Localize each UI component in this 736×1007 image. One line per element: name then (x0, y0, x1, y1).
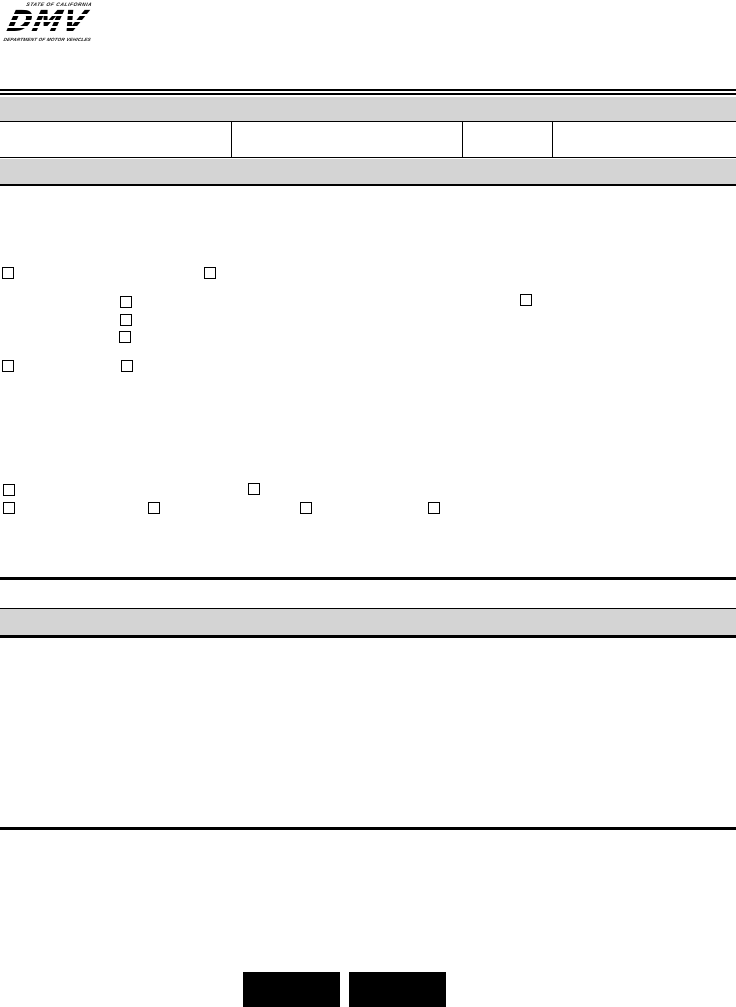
checkbox-b1[interactable] (3, 484, 15, 496)
checkbox-a7[interactable] (2, 360, 14, 372)
checkbox-b6[interactable] (428, 502, 440, 514)
form-field-cell-2[interactable] (231, 122, 462, 157)
checkbox-a4[interactable] (120, 296, 132, 308)
section-divider-rule (0, 577, 736, 580)
checkbox-b5[interactable] (300, 502, 312, 514)
double-rule-top-line (0, 89, 736, 91)
signature-divider-rule (0, 827, 736, 830)
checkbox-a5[interactable] (120, 314, 132, 326)
double-rule-bottom-line (0, 93, 736, 95)
form-subsection-bar (0, 159, 736, 186)
form-field-cell-4[interactable] (552, 122, 736, 157)
dmv-form-page: STATE OF CALIFORNIA DMV DEPARTMENT OF MO… (0, 0, 736, 1007)
form-field-cell-3[interactable] (462, 122, 552, 157)
checkbox-b4[interactable] (148, 502, 160, 514)
checkbox-a2[interactable] (204, 267, 216, 279)
checkbox-a1[interactable] (2, 267, 14, 279)
checkbox-b3[interactable] (3, 502, 15, 514)
form-title-bar (0, 97, 736, 121)
checkbox-a8[interactable] (121, 360, 133, 372)
checkbox-a6[interactable] (119, 331, 131, 343)
form-action-button-left[interactable] (243, 972, 340, 1007)
form-section2-bar (0, 608, 736, 638)
form-action-button-right[interactable] (349, 972, 446, 1007)
checkbox-a3[interactable] (520, 294, 532, 306)
dmv-logo: STATE OF CALIFORNIA DMV DEPARTMENT OF MO… (3, 2, 113, 42)
form-field-row (0, 121, 736, 158)
dmv-logo-letters: DMV (5, 8, 104, 36)
form-field-cell-1[interactable] (0, 122, 231, 157)
checkbox-b2[interactable] (248, 483, 260, 495)
